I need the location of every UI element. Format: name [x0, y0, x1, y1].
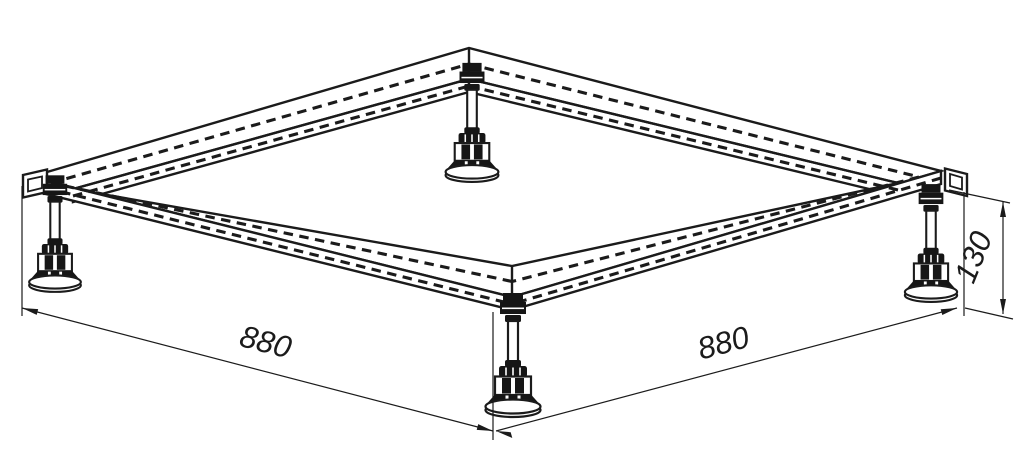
arrowhead — [496, 431, 512, 438]
arrowhead — [477, 424, 493, 431]
arrowhead — [22, 308, 38, 315]
leveling-foot-front — [486, 293, 541, 417]
dim-label-left-width: 880 — [236, 318, 295, 365]
leveling-foot-right — [905, 184, 957, 302]
dim-label-right-width: 880 — [694, 319, 753, 366]
arrowhead — [1000, 299, 1006, 314]
extension-line-height-top — [949, 190, 1010, 203]
dim-label-height: 130 — [947, 227, 999, 288]
extension-line-height-bottom — [965, 308, 1013, 319]
arrowhead — [1000, 202, 1006, 217]
technical-drawing-canvas: 880 880 130 — [0, 0, 1024, 455]
frame-isometric-drawing: 880 880 130 — [0, 0, 1024, 455]
arrowhead — [941, 308, 957, 315]
dimension-height: 130 — [947, 190, 1013, 319]
